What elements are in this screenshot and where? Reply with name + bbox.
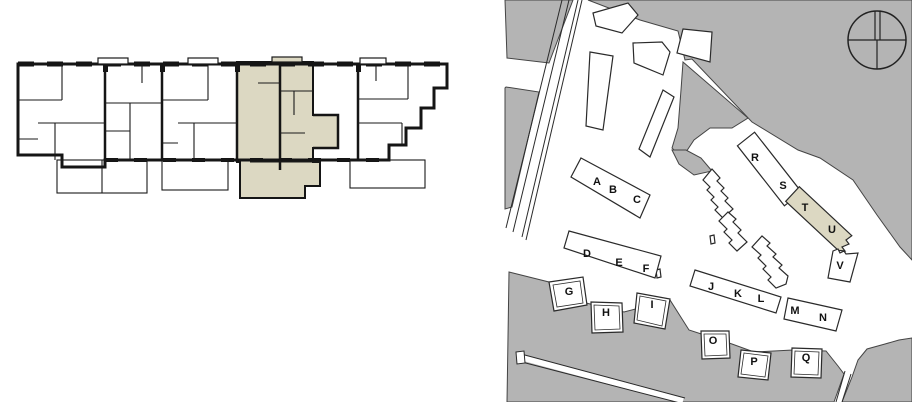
ground-center-tongue [672, 150, 712, 175]
building-label-J: J [708, 281, 714, 293]
building-label-O: O [709, 335, 718, 347]
building-unlabeled-5 [639, 90, 674, 157]
building-label-S: S [779, 180, 786, 192]
highlighted-unit[interactable] [237, 62, 338, 198]
road-marker [516, 351, 525, 364]
building-label-F: F [643, 263, 650, 275]
building-outline [18, 64, 447, 167]
building-unlabeled-1 [593, 3, 638, 33]
interior-partitions [18, 64, 408, 162]
building-label-H: H [602, 307, 610, 319]
building-label-V: V [836, 260, 844, 272]
building-label-P: P [750, 356, 757, 368]
building-unlabeled-3 [677, 29, 712, 62]
building-label-D: D [583, 248, 591, 260]
wall-pier [160, 64, 165, 72]
building-label-G: G [565, 286, 574, 298]
building-unlabeled-2 [633, 42, 670, 75]
building-label-E: E [615, 257, 622, 269]
wall-pier [235, 64, 240, 72]
building-label-R: R [751, 152, 759, 164]
wall-pier [356, 64, 361, 72]
building-label-A: A [593, 176, 601, 188]
building-label-L: L [758, 293, 765, 305]
building-label-M: M [790, 305, 799, 317]
building-jagged-3 [752, 236, 788, 288]
building-label-I: I [650, 299, 653, 311]
building-label-C: C [633, 194, 641, 206]
building-TU-highlighted[interactable] [786, 187, 852, 251]
building-jagged-2 [719, 212, 747, 251]
highlighted-unit-bump [272, 57, 302, 62]
building-label-Q: Q [802, 352, 811, 364]
site-plan: ABCDEFGHIJKLMNOPQRSTUV [496, 0, 912, 402]
building-label-B: B [609, 184, 617, 196]
building-label-U: U [828, 224, 836, 236]
plan-viewer: { "page": { "background": "#ffffff" }, "… [0, 0, 912, 402]
ground-top-left-lower [505, 87, 539, 209]
ground-top-right [588, 0, 912, 260]
building-label-T: T [802, 202, 809, 214]
building-jagged-1 [703, 169, 733, 218]
building-label-K: K [734, 288, 742, 300]
floor-plan [10, 55, 460, 202]
building-label-N: N [819, 312, 827, 324]
building-unlabeled-4 [586, 52, 613, 130]
wall-pier [103, 64, 108, 72]
ground-top-left-upper [505, 0, 573, 63]
ground-bottom-right [842, 338, 912, 402]
building-sliver [710, 235, 715, 244]
